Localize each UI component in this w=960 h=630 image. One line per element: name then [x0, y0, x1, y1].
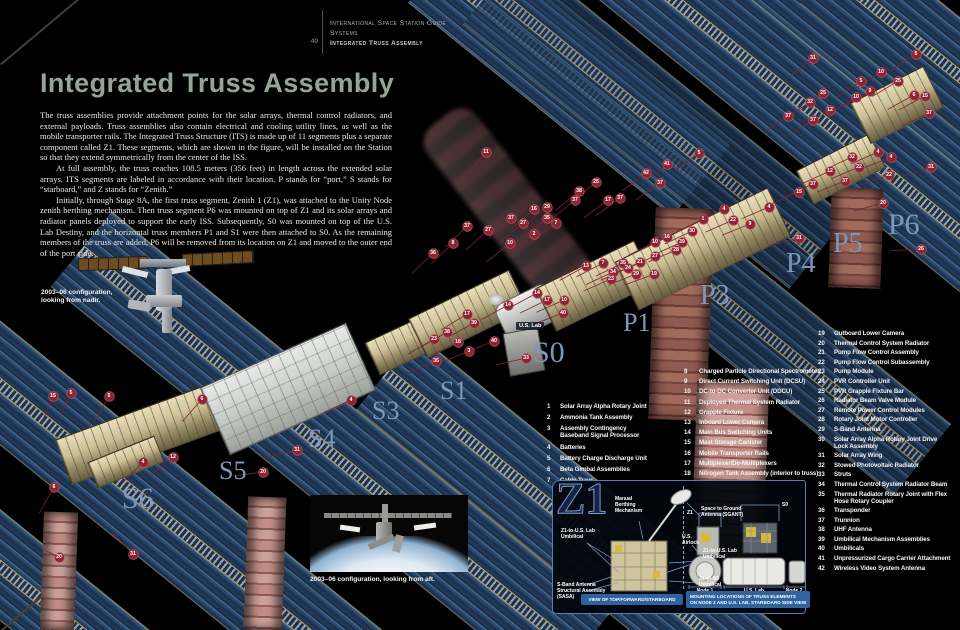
intro-paragraph-1: The truss assemblies provide attachment …: [40, 110, 392, 163]
legend-item-label: Inboard Lower Camera: [699, 419, 764, 426]
legend-item-number: 27: [818, 407, 834, 414]
legend-item-12: 12Grapple Fixture: [684, 409, 819, 416]
legend-item-number: 24: [818, 378, 834, 385]
legend-item-42: 42Wireless Video System Antenna: [818, 565, 950, 572]
legend-item-label: Trunnion: [834, 517, 860, 524]
callout-22: 22: [885, 171, 894, 180]
legend-item-label: Deployed Thermal System Radiator: [699, 399, 800, 406]
label-sgant: Space to Ground Antenna (SGANT): [701, 507, 743, 519]
legend-item-number: 15: [684, 439, 699, 446]
callout-22: 22: [729, 216, 738, 225]
callout-37: 37: [809, 180, 818, 189]
legend-item-label: Mast Storage Canister: [699, 439, 762, 446]
callout-23: 23: [607, 275, 616, 284]
segment-label-s1: S1: [440, 376, 467, 406]
legend-item-number: 35: [818, 491, 834, 505]
callout-37: 37: [507, 214, 516, 223]
legend-item-label: Pump Flow Control Subassembly: [834, 359, 929, 366]
legend-item-number: 6: [547, 466, 560, 473]
legend-item-label: Ammonia Tank Assembly: [560, 414, 633, 421]
page-number: 49: [296, 38, 318, 45]
legend-item-24: 24PVR Controller Unit: [818, 378, 950, 385]
legend-item-34: 34Thermal Control System Radiator Beam: [818, 481, 950, 488]
legend-item-28: 28Rotary Joint Motor Controller: [818, 416, 950, 423]
callout-38: 38: [575, 187, 584, 196]
label-z1-small: Z1: [687, 511, 693, 517]
segment-label-s5: S5: [219, 456, 246, 486]
legend-item-number: 26: [818, 397, 834, 404]
callout-4: 4: [720, 205, 729, 214]
callout-9: 9: [866, 87, 875, 96]
callout-39: 39: [470, 319, 479, 328]
callout-40: 40: [490, 337, 499, 346]
legend-item-number: 14: [684, 429, 699, 436]
legend-item-label: Thermal Control System Radiator: [834, 340, 929, 347]
legend-item-label: Struts: [834, 471, 851, 478]
legend-item-10: 10DC-to-DC Converter Unit (DDCU): [684, 388, 819, 395]
photo-inset-aft: [310, 495, 468, 572]
segment-label-p3: P3: [700, 280, 730, 312]
header-chapter: Integrated Truss Assembly: [330, 40, 423, 47]
legend-item-22: 22Pump Flow Control Subassembly: [818, 359, 950, 366]
legend-item-label: Unpressurized Cargo Carrier Attachment: [834, 555, 950, 562]
header-book-title: International Space Station Guide: [330, 20, 446, 27]
header-section: Systems: [330, 30, 358, 37]
legend-item-label: S-Band Antenna: [834, 426, 881, 433]
legend-item-number: 3: [547, 425, 560, 439]
callout-20: 20: [879, 199, 888, 208]
legend-item-number: 5: [547, 455, 560, 462]
legend-item-37: 37Trunnion: [818, 517, 950, 524]
legend-item-label: Multiplexer/De-Multiplexers: [699, 460, 777, 467]
segment-label-p4: P4: [786, 248, 816, 280]
legend-item-number: 38: [818, 526, 834, 533]
segment-label-p6: P6: [888, 208, 920, 242]
legend-item-number: 10: [684, 388, 699, 395]
legend-item-label: Remote Power Control Modules: [834, 407, 925, 414]
intro-paragraph-2: At full assembly, the truss reaches 108.…: [40, 163, 392, 195]
callout-17: 17: [604, 196, 613, 205]
callout-12: 12: [169, 453, 178, 462]
callout-16: 16: [663, 233, 672, 242]
callout-33: 33: [522, 354, 531, 363]
legend-item-label: Thermal Radiator Rotary Joint with Flex …: [834, 491, 947, 505]
header-divider: [322, 10, 323, 54]
legend-item-number: 17: [684, 460, 699, 467]
callout-6: 6: [198, 395, 207, 404]
callout-38: 38: [443, 328, 452, 337]
segment-label-s6: S6: [122, 482, 154, 516]
legend-item-15: 15Mast Storage Canister: [684, 439, 819, 446]
legend-item-number: 28: [818, 416, 834, 423]
callout-32: 32: [848, 153, 857, 162]
legend-item-number: 31: [818, 452, 834, 459]
legend-item-number: 33: [818, 471, 834, 478]
segment-label-s3: S3: [372, 396, 399, 426]
callout-37: 37: [925, 109, 934, 118]
legend-item-36: 36Transponder: [818, 507, 950, 514]
panel-footer-mounting: MOUNTING LOCATIONS OF TRUSS ELEMENTS ON …: [686, 591, 810, 608]
callout-41: 41: [663, 160, 672, 169]
callout-7: 7: [552, 219, 561, 228]
legend-item-label: Beta Gimbal Assemblies: [560, 466, 630, 473]
legend-item-14: 14Main Bus Switching Units: [684, 429, 819, 436]
callout-17: 17: [463, 310, 472, 319]
callout-14: 14: [504, 301, 513, 310]
legend-item-label: Umbilicals: [834, 545, 864, 552]
legend-item-26: 26Radiator Beam Valve Module: [818, 397, 950, 404]
label-z1-s0-umbilical: Z1-to-S0 Umbilical: [699, 577, 721, 589]
legend-column-2: 8Charged Particle Directional Spectromet…: [684, 368, 819, 480]
callout-7: 7: [599, 259, 608, 268]
legend-item-23: 23Pump Module: [818, 368, 950, 375]
callout-25: 25: [592, 178, 601, 187]
callout-10: 10: [506, 239, 515, 248]
legend-item-number: 16: [684, 450, 699, 457]
callout-37: 37: [784, 112, 793, 121]
legend-item-41: 41Unpressurized Cargo Carrier Attachment: [818, 555, 950, 562]
legend-item-number: 40: [818, 545, 834, 552]
callout-12: 12: [826, 106, 835, 115]
intro-text: The truss assemblies provide attachment …: [40, 110, 392, 258]
callout-15: 15: [49, 392, 58, 401]
legend-item-number: 29: [818, 426, 834, 433]
panel-footer-view: VIEW OF TOP/FORWARD/STARBOARD: [581, 594, 683, 605]
callout-11: 11: [482, 148, 491, 157]
callout-9: 9: [746, 220, 755, 229]
legend-item-label: DC-to-DC Converter Unit (DDCU): [699, 388, 792, 395]
callout-14: 14: [533, 289, 542, 298]
callout-5: 5: [695, 149, 704, 158]
legend-item-label: Main Bus Switching Units: [699, 429, 772, 436]
callout-37: 37: [809, 116, 818, 125]
callout-16: 16: [530, 205, 539, 214]
callout-40: 40: [559, 309, 568, 318]
legend-item-38: 38UHF Antenna: [818, 526, 950, 533]
legend-item-number: 42: [818, 565, 834, 572]
legend-item-30: 30Solar Array Alpha Rotary Joint Drive L…: [818, 436, 950, 450]
legend-item-number: 1: [547, 403, 560, 410]
legend-item-21: 21Pump Flow Control Assembly: [818, 349, 950, 356]
intro-paragraph-3: Initially, through Stage 8A, the first t…: [40, 195, 392, 259]
legend-item-33: 33Struts: [818, 471, 950, 478]
legend-item-label: Pump Module: [834, 368, 873, 375]
callout-37: 37: [841, 177, 850, 186]
callout-2: 2: [530, 230, 539, 239]
caption-nadir: 2003–06 configuration, looking from nadi…: [41, 289, 112, 305]
legend-item-label: Assembly Contingency Baseband Signal Pro…: [560, 425, 639, 439]
legend-item-label: Radiator Beam Valve Module: [834, 397, 916, 404]
callout-4: 4: [765, 203, 774, 212]
callout-20: 20: [55, 553, 64, 562]
legend-item-number: 34: [818, 481, 834, 488]
legend-item-13: 13Inboard Lower Camera: [684, 419, 819, 426]
callout-29: 29: [632, 270, 641, 279]
legend-item-number: 32: [818, 462, 834, 469]
legend-item-8: 8Charged Particle Directional Spectromet…: [684, 368, 819, 375]
legend-item-2: 2Ammonia Tank Assembly: [547, 414, 647, 421]
legend-item-label: Grapple Fixture: [699, 409, 743, 416]
legend-item-number: 23: [818, 368, 834, 375]
legend-item-number: 18: [684, 470, 699, 477]
callout-5: 5: [912, 50, 921, 59]
callout-27: 27: [484, 226, 493, 235]
callout-37: 37: [571, 196, 580, 205]
callout-22: 22: [855, 163, 864, 172]
z1-detail-panel: Z1: [552, 480, 806, 614]
label-s0-small: S0: [782, 503, 788, 509]
callout-35: 35: [543, 214, 552, 223]
callout-17: 17: [543, 296, 552, 305]
callout-15: 15: [795, 188, 804, 197]
callout-4: 4: [347, 396, 356, 405]
callout-1: 1: [699, 215, 708, 224]
callout-4: 4: [887, 153, 896, 162]
legend-item-25: 25PVR Grapple Fixture Bar: [818, 388, 950, 395]
callout-20: 20: [259, 468, 268, 477]
callout-6: 6: [50, 483, 59, 492]
caption-aft: 2003–06 configuration, looking from aft.: [310, 576, 435, 584]
segment-label-p5: P5: [833, 228, 863, 260]
legend-item-1: 1Solar Array Alpha Rotary Joint: [547, 403, 647, 410]
legend-item-number: 22: [818, 359, 834, 366]
segment-label-s4: S4: [308, 424, 335, 454]
callout-5: 5: [67, 389, 76, 398]
legend-item-label: Pump Flow Control Assembly: [834, 349, 919, 356]
callout-27: 27: [519, 219, 528, 228]
callout-3: 3: [465, 347, 474, 356]
legend-item-number: 19: [818, 330, 834, 337]
legend-item-number: 20: [818, 340, 834, 347]
callout-35: 35: [432, 357, 441, 366]
label-manual-berthing-mechanism: Manual Berthing Mechanism: [615, 497, 642, 514]
legend-item-label: Solar Array Wing: [834, 452, 882, 459]
page-title: Integrated Truss Assembly: [40, 68, 394, 99]
callout-25: 25: [819, 89, 828, 98]
callout-10: 10: [852, 93, 861, 102]
legend-item-3: 3Assembly Contingency Baseband Signal Pr…: [547, 425, 647, 439]
legend-item-number: 41: [818, 555, 834, 562]
book-page: 49 International Space Station Guide Sys…: [0, 0, 960, 630]
callout-27: 27: [651, 252, 660, 261]
callout-25: 25: [894, 77, 903, 86]
segment-label-s0: S0: [533, 336, 565, 370]
label-z1-uslab-umbilical-right: Z1-to-U.S. Lab Umbilical: [703, 549, 737, 561]
callout-31: 31: [809, 54, 818, 63]
callout-31: 31: [129, 550, 138, 559]
legend-item-number: 12: [684, 409, 699, 416]
callout-28: 28: [672, 246, 681, 255]
legend-item-number: 9: [684, 378, 699, 385]
legend-item-32: 32Stowed Photovoltaic Radiator: [818, 462, 950, 469]
callout-31: 31: [293, 446, 302, 455]
callout-4: 4: [874, 148, 883, 157]
legend-item-label: Charged Particle Directional Spectromete…: [699, 368, 819, 375]
legend-item-6: 6Beta Gimbal Assemblies: [547, 466, 647, 473]
legend-item-20: 20Thermal Control System Radiator: [818, 340, 950, 347]
callout-6: 6: [910, 91, 919, 100]
callout-13: 13: [582, 262, 591, 271]
callout-23: 23: [430, 335, 439, 344]
legend-item-label: Thermal Control System Radiator Beam: [834, 481, 947, 488]
legend-item-label: Solar Array Alpha Rotary Joint: [560, 403, 647, 410]
callout-36: 36: [429, 249, 438, 258]
legend-item-number: 11: [684, 399, 699, 406]
legend-item-number: 2: [547, 414, 560, 421]
legend-item-number: 21: [818, 349, 834, 356]
legend-item-16: 16Mobile Transporter Rails: [684, 450, 819, 457]
legend-item-39: 39Umbilical Mechanism Assemblies: [818, 536, 950, 543]
legend-item-number: 4: [547, 444, 560, 451]
callout-19: 19: [650, 270, 659, 279]
legend-item-number: 39: [818, 536, 834, 543]
callout-18: 18: [454, 338, 463, 347]
legend-item-31: 31Solar Array Wing: [818, 452, 950, 459]
z1-panel-title: Z1: [556, 473, 607, 524]
callout-10: 10: [560, 296, 569, 305]
callout-26: 26: [917, 245, 926, 254]
legend-item-label: Solar Array Alpha Rotary Joint Drive Loc…: [834, 436, 937, 450]
callout-10: 10: [877, 68, 886, 77]
legend-item-19: 19Outboard Lower Camera: [818, 330, 950, 337]
legend-item-5: 5Battery Charge Discharge Unit: [547, 455, 647, 462]
callout-4: 4: [139, 458, 148, 467]
legend-item-label: Umbilical Mechanism Assemblies: [834, 536, 930, 543]
legend-column-3: 19Outboard Lower Camera20Thermal Control…: [818, 330, 950, 574]
segment-label-p1: P1: [623, 308, 650, 338]
legend-item-29: 29S-Band Antenna: [818, 426, 950, 433]
legend-item-label: PVR Grapple Fixture Bar: [834, 388, 904, 395]
callout-37: 37: [656, 179, 665, 188]
callout-31: 31: [927, 163, 936, 172]
legend-item-17: 17Multiplexer/De-Multiplexers: [684, 460, 819, 467]
callout-10: 10: [651, 238, 660, 247]
label-us-airlock: U.S. Airlock: [682, 535, 699, 547]
callout-37: 37: [616, 194, 625, 203]
legend-item-11: 11Deployed Thermal System Radiator: [684, 399, 819, 406]
legend-item-number: 13: [684, 419, 699, 426]
legend-item-label: Mobile Transporter Rails: [699, 450, 769, 457]
legend-item-label: PVR Controller Unit: [834, 378, 890, 385]
legend-item-label: Nitrogen Tank Assembly (interior to trus…: [699, 470, 818, 477]
legend-item-number: 8: [684, 368, 699, 375]
callout-21: 21: [636, 258, 645, 267]
legend-item-4: 4Batteries: [547, 444, 647, 451]
callout-32: 32: [806, 98, 815, 107]
callout-42: 42: [642, 169, 651, 178]
callout-15: 15: [921, 92, 930, 101]
callout-12: 12: [826, 167, 835, 176]
callout-8: 8: [449, 239, 458, 248]
legend-item-number: 30: [818, 436, 834, 450]
us-lab-label: U.S. Lab: [516, 322, 544, 330]
legend-item-9: 9Direct Current Switching Unit (DCSU): [684, 378, 819, 385]
legend-item-label: Battery Charge Discharge Unit: [560, 455, 647, 462]
legend-item-label: Direct Current Switching Unit (DCSU): [699, 378, 805, 385]
callout-5: 5: [105, 392, 114, 401]
legend-item-label: Rotary Joint Motor Controller: [834, 416, 917, 423]
callout-31: 31: [795, 234, 804, 243]
legend-item-27: 27Remote Power Control Modules: [818, 407, 950, 414]
legend-item-label: Transponder: [834, 507, 870, 514]
legend-item-label: Outboard Lower Camera: [834, 330, 904, 337]
legend-item-number: 37: [818, 517, 834, 524]
callout-29: 29: [543, 203, 552, 212]
legend-item-label: Wireless Video System Antenna: [834, 565, 925, 572]
legend-item-label: Stowed Photovoltaic Radiator: [834, 462, 919, 469]
callout-37: 37: [463, 222, 472, 231]
legend-item-40: 40Umbilicals: [818, 545, 950, 552]
callout-24: 24: [624, 264, 633, 273]
legend-item-label: Batteries: [560, 444, 586, 451]
legend-item-number: 36: [818, 507, 834, 514]
legend-item-18: 18Nitrogen Tank Assembly (interior to tr…: [684, 470, 819, 477]
legend-item-35: 35Thermal Radiator Rotary Joint with Fle…: [818, 491, 950, 505]
legend-item-label: UHF Antenna: [834, 526, 872, 533]
legend-item-number: 25: [818, 388, 834, 395]
callout-5: 5: [857, 77, 866, 86]
callout-39: 39: [678, 238, 687, 247]
label-z1-uslab-umbilical-left: Z1-to-U.S. Lab Umbilical: [561, 529, 595, 541]
callout-30: 30: [688, 227, 697, 236]
